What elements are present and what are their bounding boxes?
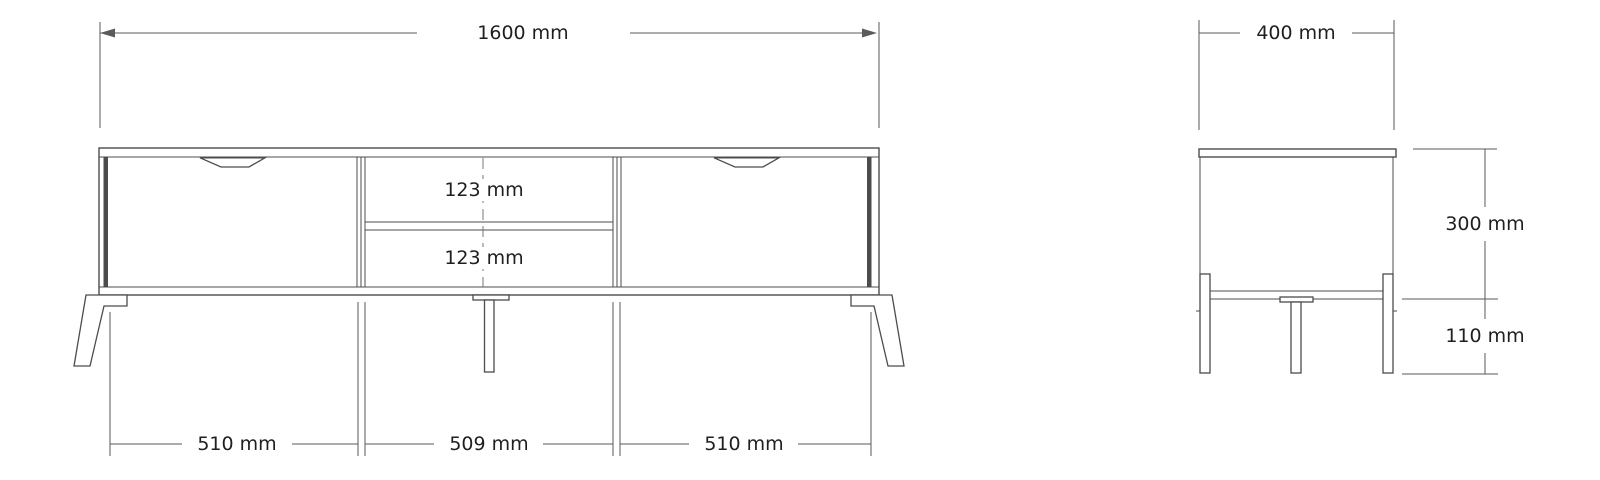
- drawing-svg: 1600 mm 123 mm 123 mm: [0, 0, 1600, 480]
- front-legs: [74, 295, 904, 372]
- technical-drawing: 1600 mm 123 mm 123 mm: [0, 0, 1600, 480]
- left-door: [104, 157, 357, 287]
- side-view: 400 mm 300 mm 110 mm: [1196, 20, 1525, 374]
- left-door-hinge-edge: [104, 157, 108, 287]
- center-leg-plate: [473, 295, 509, 300]
- left-door-notch-pull: [200, 158, 265, 167]
- side-top-panel: [1199, 149, 1396, 157]
- side-depth-dimension: 400 mm: [1199, 20, 1394, 130]
- dimension-label-right-door: 510 mm: [704, 433, 783, 455]
- right-door-slats: [621, 157, 871, 287]
- dimension-label-depth: 400 mm: [1256, 22, 1335, 44]
- side-center-leg: [1291, 302, 1301, 373]
- dimension-label-upper-shelf: 123 mm: [444, 179, 523, 201]
- left-door-slats: [104, 157, 357, 287]
- front-width-dimension: 1600 mm: [100, 22, 879, 128]
- right-door-hinge-edge: [867, 157, 871, 287]
- dimension-label-total-width: 1600 mm: [477, 22, 568, 44]
- right-divider: [613, 157, 617, 287]
- dimension-label-lower-shelf: 123 mm: [444, 247, 523, 269]
- center-leg: [485, 300, 495, 372]
- dimension-label-body-height: 300 mm: [1445, 213, 1524, 235]
- side-body-outline: [1200, 157, 1393, 291]
- side-legs: [1196, 274, 1397, 373]
- right-door: [621, 157, 871, 287]
- middle-shelf: [365, 222, 613, 230]
- right-leg: [851, 295, 904, 366]
- side-cabinet-body: [1199, 149, 1396, 299]
- front-cabinet-body: 123 mm 123 mm: [99, 148, 879, 295]
- side-back-leg: [1383, 274, 1393, 373]
- arrow-right-icon: [862, 29, 877, 38]
- dimension-label-left-door: 510 mm: [197, 433, 276, 455]
- side-height-dimensions: 300 mm 110 mm: [1402, 149, 1525, 374]
- left-leg: [74, 295, 127, 366]
- side-front-leg: [1200, 274, 1210, 373]
- right-door-notch-pull: [714, 158, 779, 167]
- side-center-leg-plate: [1280, 297, 1313, 302]
- arrow-left-icon: [100, 29, 115, 38]
- dimension-label-leg-height: 110 mm: [1445, 325, 1524, 347]
- middle-section: 123 mm 123 mm: [361, 157, 617, 287]
- dimension-label-middle-section: 509 mm: [449, 433, 528, 455]
- front-view: 1600 mm 123 mm 123 mm: [74, 22, 904, 456]
- left-divider: [361, 157, 365, 287]
